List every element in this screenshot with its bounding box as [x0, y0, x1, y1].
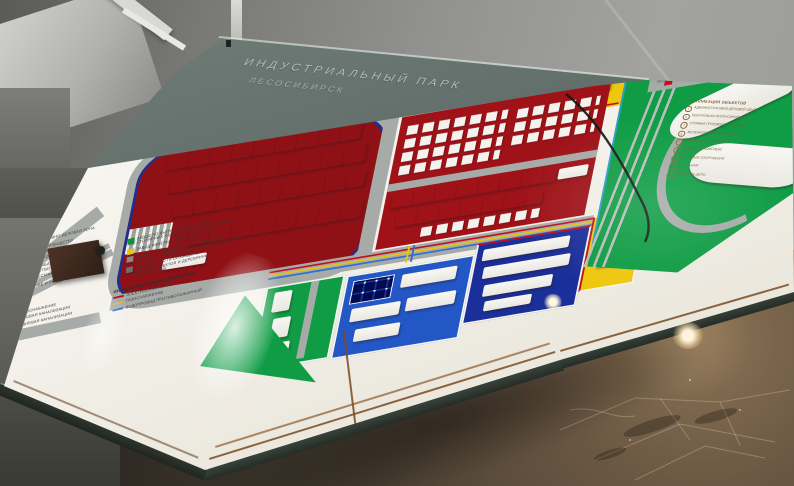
- board-reflection: [520, 120, 790, 290]
- item-number-badge: 1: [684, 105, 692, 112]
- glass-corner-notch: [226, 40, 231, 47]
- background-knob: [96, 246, 105, 255]
- zone-swatch: [127, 238, 134, 245]
- zone-swatch: [126, 266, 133, 273]
- small-building: [674, 66, 687, 76]
- light-reflection-board: [543, 294, 563, 310]
- zone-swatch: [127, 248, 134, 255]
- small-building: [691, 67, 704, 77]
- museum-scene-photo: АДМИНИСТРАТИВНО-ДЕЛОВАЯ ЗОНА ЗАВОД ПО ПР…: [0, 0, 794, 486]
- zone-swatch: [126, 256, 133, 263]
- site-list-label: АДМИНИСТРАТИВНО-ДЕЛОВОЙ ЦЕНТР: [694, 106, 759, 112]
- light-reflection-table: [672, 322, 704, 349]
